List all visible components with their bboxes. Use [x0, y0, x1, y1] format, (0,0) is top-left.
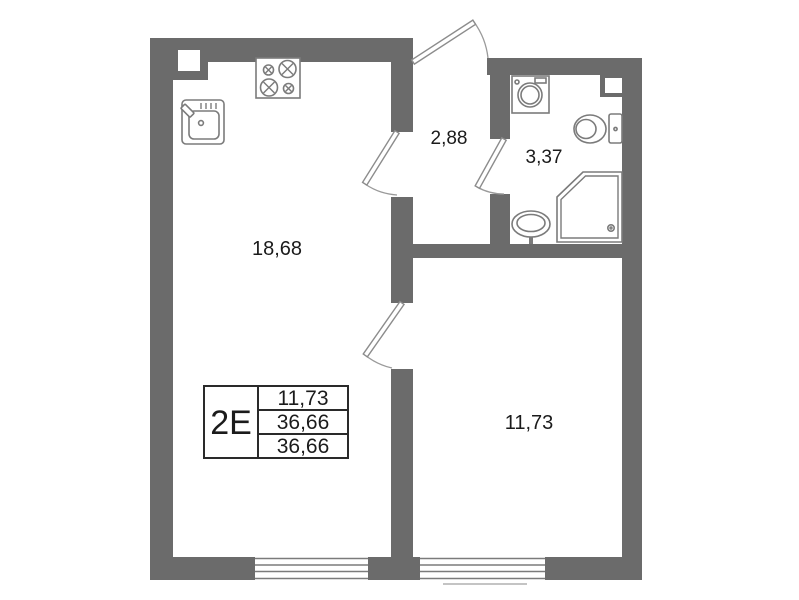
unit-type-label: 2E: [210, 404, 252, 442]
vent-shaft-kitchen: [178, 50, 200, 71]
wall-partition-upper: [391, 38, 413, 132]
room-label-bathroom: 3,37: [526, 147, 563, 168]
window-bedroom: [420, 557, 545, 584]
door-bathroom: [475, 138, 506, 194]
door-bedroom: [363, 302, 404, 368]
wall-right-outer: [622, 58, 642, 580]
table-row-living-area: 11,73: [278, 387, 329, 410]
washing-machine-icon: [512, 76, 549, 113]
wall-bathroom-left-lower: [490, 194, 510, 258]
shower-icon: [557, 172, 622, 242]
window-living-room: [255, 557, 368, 580]
room-label-living-kitchen: 18,68: [252, 238, 302, 260]
stove-icon: [256, 58, 300, 98]
wall-bathroom-left-upper: [490, 58, 510, 139]
door-living-hallway: [363, 131, 400, 195]
pedestal-sink-icon: [512, 211, 550, 244]
toilet-icon: [574, 114, 622, 143]
unit-info-table: 2E 11,73 36,66 36,66: [204, 386, 348, 458]
floor-plan-svg: 18,68 2,88 3,37 11,73 2E 11,73 36,66 36,…: [0, 0, 799, 600]
floor-plan: 18,68 2,88 3,37 11,73 2E 11,73 36,66 36,…: [0, 0, 799, 600]
doors: [363, 20, 507, 368]
room-label-bedroom: 11,73: [505, 412, 554, 434]
room-label-hallway: 2,88: [431, 128, 468, 149]
wall-bedroom-top: [408, 244, 642, 258]
wall-left-outer: [150, 38, 173, 580]
entrance-door: [412, 20, 488, 64]
wall-bathroom-top: [487, 58, 642, 75]
table-row-total-area: 36,66: [277, 411, 330, 434]
vent-shaft-bathroom: [605, 78, 622, 93]
wall-bottom-outer: [150, 557, 642, 580]
kitchen-sink-icon: [181, 100, 224, 144]
table-row-overall-area: 36,66: [277, 435, 330, 458]
wall-partition-lower: [391, 369, 413, 557]
